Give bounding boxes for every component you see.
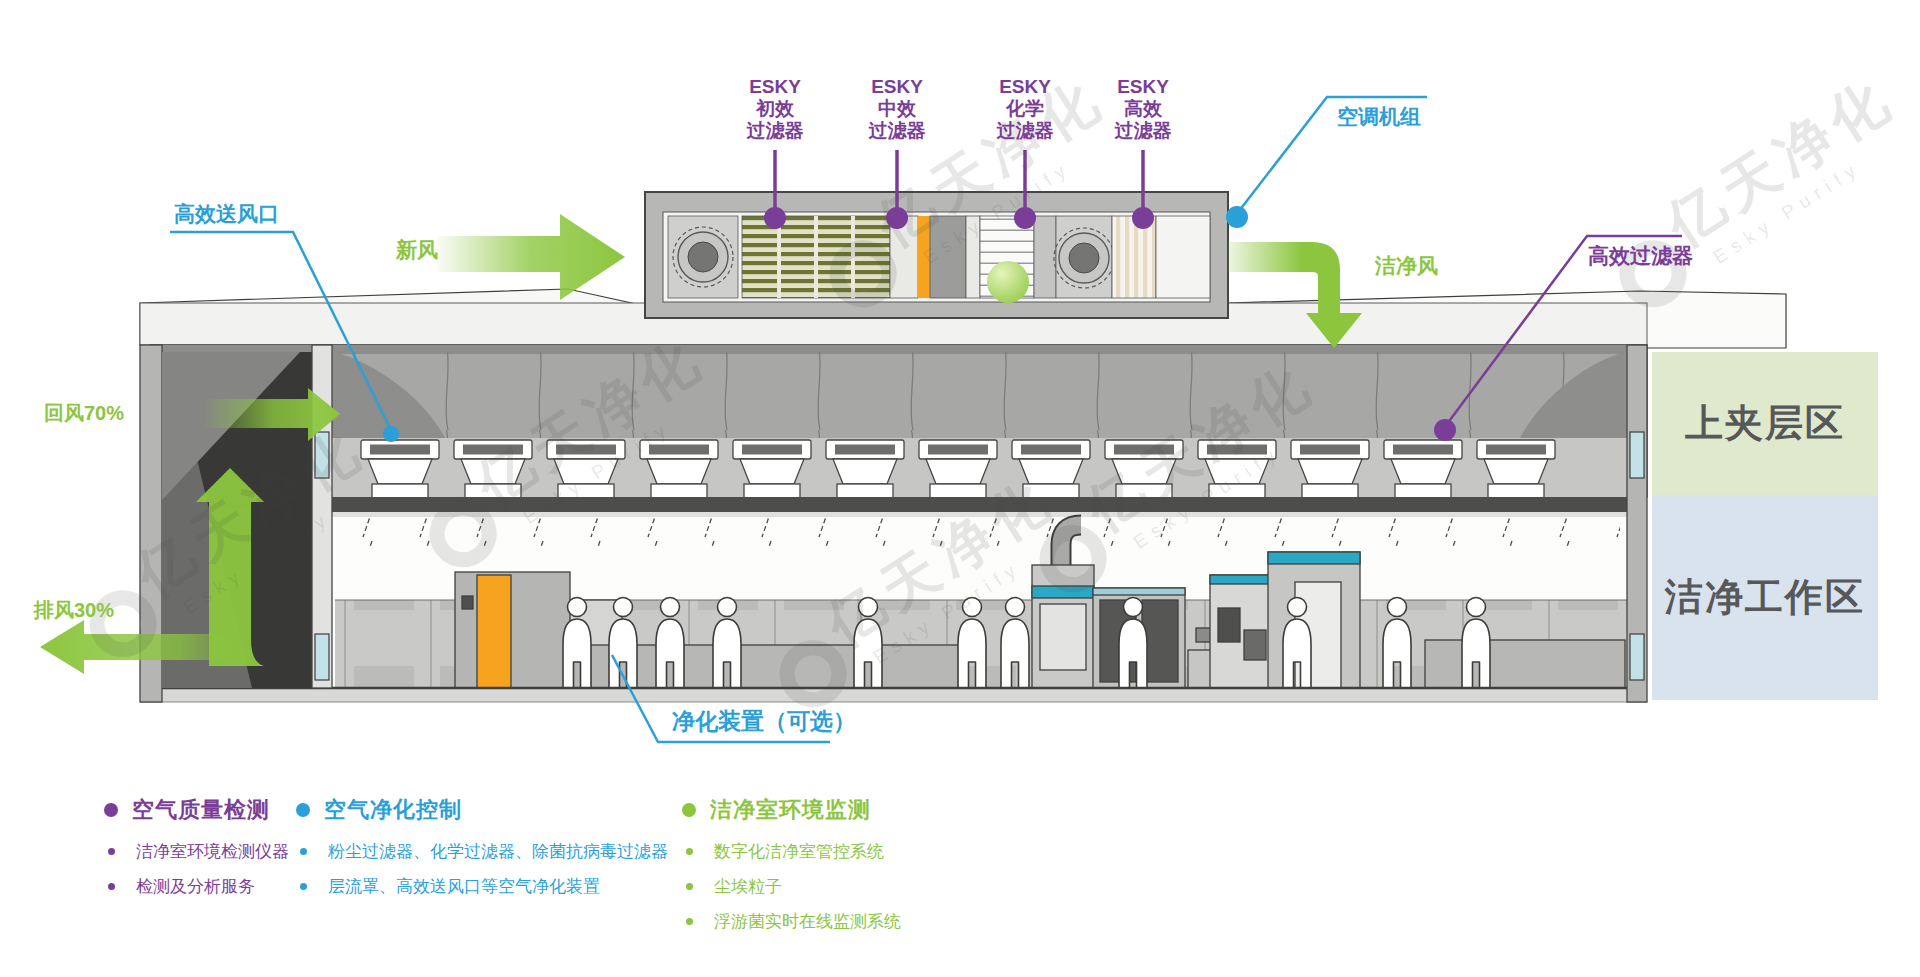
hepa-diffuser xyxy=(919,440,997,498)
hepa-diffuser xyxy=(826,440,904,498)
orange-door xyxy=(477,575,511,688)
legend-header: 空气质量检测 xyxy=(104,795,289,825)
legend-environment-monitoring: 洁净室环境监测 数字化洁净室管控系统 尘埃粒子 浮游菌实时在线监测系统 xyxy=(682,795,901,945)
legend-header: 空气净化控制 xyxy=(296,795,668,825)
vision-panel xyxy=(315,634,329,680)
legend-item-label: 数字化洁净室管控系统 xyxy=(714,840,884,863)
legend-item: 尘埃粒子 xyxy=(682,875,901,898)
pre-filter-dot xyxy=(764,207,786,229)
label-esky-mid-filter: ESKY 中效 过滤器 xyxy=(842,76,952,142)
legend-item: 浮游菌实时在线监测系统 xyxy=(682,910,901,933)
filter-word: 过滤器 xyxy=(720,120,830,142)
filter-brand: ESKY xyxy=(1088,76,1198,98)
zone-upper-plenum: 上夹层区 xyxy=(1652,352,1878,495)
filter-word: 过滤器 xyxy=(1088,120,1198,142)
filter-grade: 初效 xyxy=(720,98,830,120)
label-clean-air: 洁净风 xyxy=(1375,254,1438,278)
legend-item: 检测及分析服务 xyxy=(104,875,289,898)
zone-upper-label: 上夹层区 xyxy=(1685,398,1845,449)
filter-grade: 化学 xyxy=(970,98,1080,120)
legend-item-label: 洁净室环境检测仪器 xyxy=(136,840,289,863)
legend-item-label: 检测及分析服务 xyxy=(136,875,255,898)
legend-item-label: 粉尘过滤器、化学过滤器、除菌抗病毒过滤器 xyxy=(328,840,668,863)
filter-brand: ESKY xyxy=(720,76,830,98)
legend-item: 层流罩、高效送风口等空气净化装置 xyxy=(296,875,668,898)
legend-title: 洁净室环境监测 xyxy=(710,795,871,825)
legend-item: 数字化洁净室管控系统 xyxy=(682,840,901,863)
hepa-diffuser xyxy=(1291,440,1369,498)
room-hepa-dot xyxy=(1434,419,1456,441)
legend-item: 粉尘过滤器、化学过滤器、除菌抗病毒过滤器 xyxy=(296,840,668,863)
watermark: 亿天净化 Esky Purify xyxy=(1600,65,1919,315)
filter-grade: 高效 xyxy=(1088,98,1198,120)
label-exhaust-air: 排风30% xyxy=(34,599,114,622)
legend-dot-icon xyxy=(296,803,310,817)
legend-purification-control: 空气净化控制 粉尘过滤器、化学过滤器、除菌抗病毒过滤器 层流罩、高效送风口等空气… xyxy=(296,795,668,910)
legend-dot-icon xyxy=(104,803,118,817)
fresh-air-arrow xyxy=(437,214,625,300)
label-hepa-supply-outlet: 高效送风口 xyxy=(174,202,279,226)
label-purifier-optional: 净化装置（可选） xyxy=(672,708,856,734)
filter-word: 过滤器 xyxy=(970,120,1080,142)
cleanroom-airflow-diagram: 亿天净化 Esky Purify 亿天净化 Esky Purify 亿天净化 E… xyxy=(0,0,1920,977)
hepa-diffuser xyxy=(1384,440,1462,498)
label-return-air: 回风70% xyxy=(44,402,124,425)
label-fresh-air: 新风 xyxy=(396,238,438,262)
bullet-icon xyxy=(108,883,115,890)
legend-item-label: 浮游菌实时在线监测系统 xyxy=(714,910,901,933)
filter-brand: ESKY xyxy=(970,76,1080,98)
bullet-icon xyxy=(108,848,115,855)
bullet-icon xyxy=(686,883,693,890)
label-esky-pre-filter: ESKY 初效 过滤器 xyxy=(720,76,830,142)
label-esky-hepa-filter: ESKY 高效 过滤器 xyxy=(1088,76,1198,142)
label-esky-chemical-filter: ESKY 化学 过滤器 xyxy=(970,76,1080,142)
legend-header: 洁净室环境监测 xyxy=(682,795,901,825)
filter-grade: 中效 xyxy=(842,98,952,120)
legend-title: 空气净化控制 xyxy=(324,795,462,825)
supply-outlet-dot xyxy=(383,426,399,442)
vision-panel xyxy=(1630,432,1644,478)
vision-panel xyxy=(1630,634,1644,680)
right-wall xyxy=(1627,345,1647,702)
hepa-filter-section xyxy=(1112,216,1156,298)
label-hepa-filter: 高效过滤器 xyxy=(1588,244,1693,268)
zone-clean-work: 洁净工作区 xyxy=(1652,495,1878,700)
legend-item-label: 层流罩、高效送风口等空气净化装置 xyxy=(328,875,600,898)
legend-item: 洁净室环境检测仪器 xyxy=(104,840,289,863)
hepa-diffuser xyxy=(733,440,811,498)
hepa-diffuser xyxy=(361,440,439,498)
hepa-diffuser xyxy=(1477,440,1555,498)
hepa-filter-dot xyxy=(1132,207,1154,229)
green-ball xyxy=(987,261,1029,303)
filter-word: 过滤器 xyxy=(842,120,952,142)
legend-item-label: 尘埃粒子 xyxy=(714,875,782,898)
label-ahu-unit: 空调机组 xyxy=(1337,105,1421,129)
bullet-icon xyxy=(686,918,693,925)
filter-brand: ESKY xyxy=(842,76,952,98)
bullet-icon xyxy=(686,848,693,855)
legend-title: 空气质量检测 xyxy=(132,795,270,825)
ahu-dot xyxy=(1226,206,1248,228)
bullet-icon xyxy=(300,848,307,855)
legend-air-quality: 空气质量检测 洁净室环境检测仪器 检测及分析服务 xyxy=(104,795,289,910)
legend-dot-icon xyxy=(682,803,696,817)
bullet-icon xyxy=(300,883,307,890)
zone-work-label: 洁净工作区 xyxy=(1665,572,1865,623)
floor xyxy=(140,688,1647,702)
